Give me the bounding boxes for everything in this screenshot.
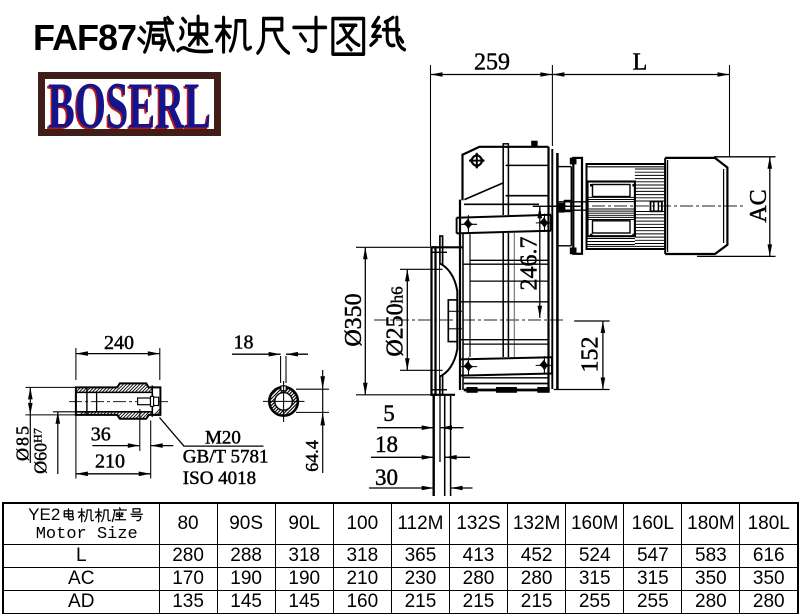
svg-text:Ø250h6: Ø250h6: [383, 286, 409, 356]
svg-text:240: 240: [104, 332, 134, 354]
svg-text:36: 36: [91, 424, 111, 446]
svg-text:18: 18: [375, 432, 398, 457]
svg-text:64.4: 64.4: [302, 440, 322, 472]
svg-text:259: 259: [474, 50, 510, 76]
svg-text:18: 18: [234, 332, 254, 354]
svg-text:246.7: 246.7: [517, 237, 543, 291]
svg-text:M20: M20: [205, 428, 241, 449]
svg-text:GB/T 5781: GB/T 5781: [183, 447, 269, 468]
svg-text:AC: AC: [746, 189, 772, 222]
svg-text:L: L: [633, 50, 648, 76]
svg-text:Ø60H7: Ø60H7: [31, 428, 51, 474]
svg-text:ISO 4018: ISO 4018: [183, 468, 256, 489]
svg-text:210: 210: [95, 451, 125, 473]
svg-text:5: 5: [383, 401, 395, 426]
svg-text:152: 152: [578, 337, 604, 373]
svg-text:Ø350: Ø350: [341, 293, 367, 346]
svg-text:30: 30: [375, 465, 398, 490]
svg-text:Ø85: Ø85: [13, 424, 33, 461]
